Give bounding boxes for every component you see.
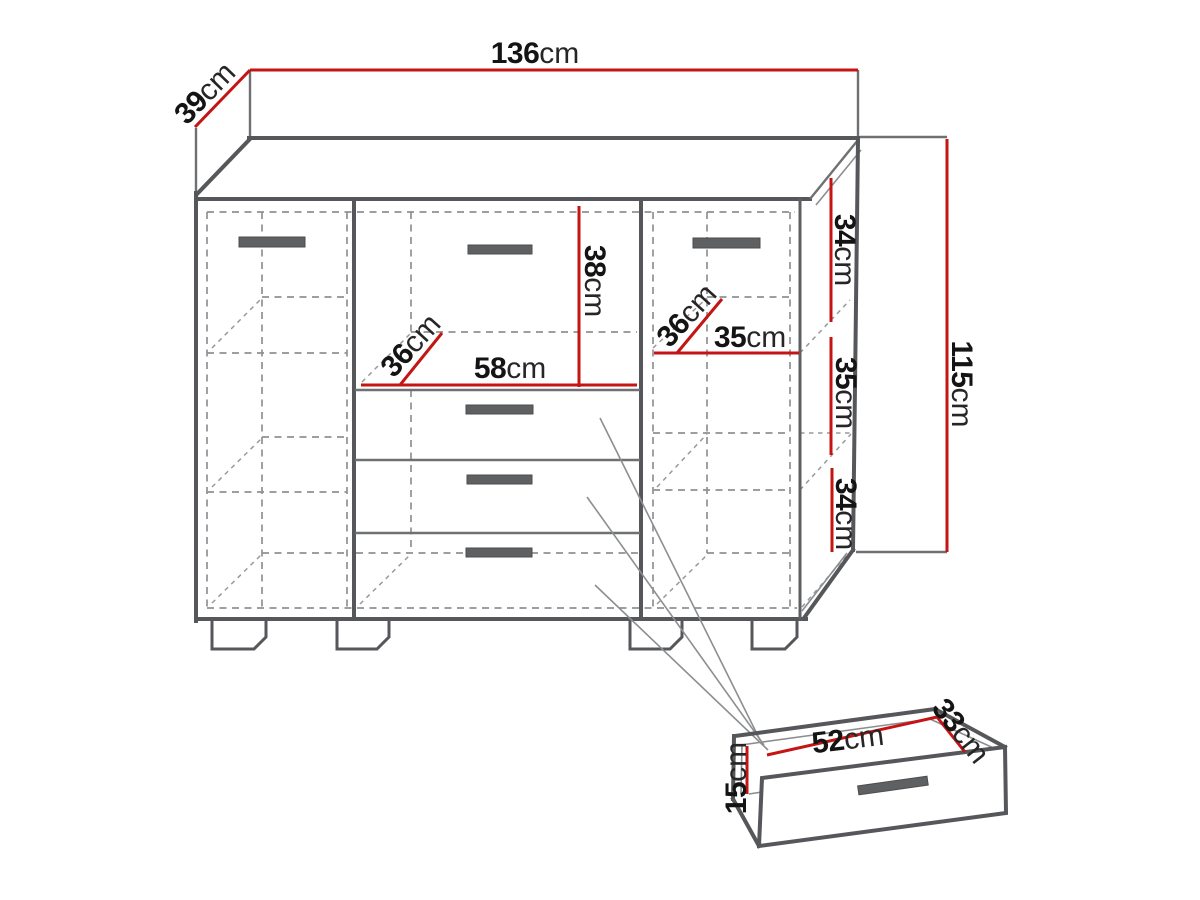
diagram-svg: 136cm 39cm 115cm 34cm 35cm 34cm 38cm 36c… — [0, 0, 1200, 900]
dimension-labels: 136cm 39cm 115cm 34cm 35cm 34cm 38cm 36c… — [168, 37, 996, 814]
dim-right-width-label: 35cm — [714, 321, 786, 354]
dim-drawer-height-label: 15cm — [720, 742, 753, 814]
dim-height-value: 115 — [945, 341, 978, 388]
dim-height-label: 115cm — [945, 341, 978, 428]
dim-side-top-label: 34cm — [828, 214, 861, 286]
foot — [337, 621, 389, 649]
top-drawer-handle — [468, 245, 532, 254]
dim-side-bottom-label: 34cm — [829, 478, 862, 550]
dim-width-value: 136 — [491, 37, 540, 70]
drawer-2-handle — [466, 405, 533, 414]
dim-depth-label: 39cm — [168, 56, 242, 131]
cabinet-feet — [212, 621, 797, 649]
drawer-3-handle — [467, 475, 532, 484]
right-door-handle — [693, 238, 760, 248]
cabinet-dimension-diagram: 136cm 39cm 115cm 34cm 35cm 34cm 38cm 36c… — [0, 0, 1200, 900]
foot — [752, 621, 797, 649]
drawer-4-handle — [466, 548, 532, 557]
dim-center-width-label: 58cm — [474, 352, 546, 385]
dim-width-label: 136cm — [491, 37, 580, 70]
foot — [212, 621, 266, 649]
left-door-handle — [239, 237, 305, 247]
dim-side-middle-label: 35cm — [829, 357, 862, 429]
dimension-lines — [195, 70, 965, 794]
handles — [239, 237, 760, 557]
dim-width-unit: cm — [539, 37, 579, 70]
dim-top-drawer-height-label: 38cm — [578, 245, 611, 317]
